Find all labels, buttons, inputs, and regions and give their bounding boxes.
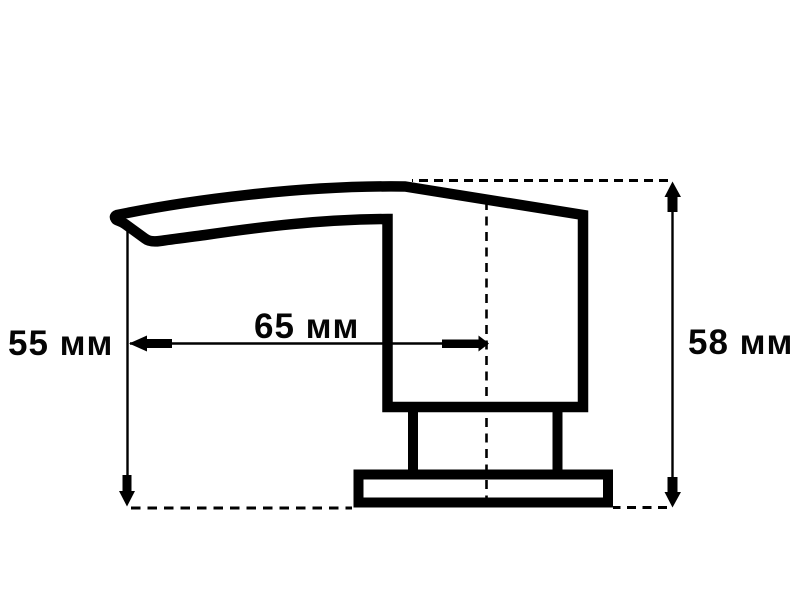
- svg-text:55 мм: 55 мм: [8, 324, 113, 363]
- svg-text:65 мм: 65 мм: [254, 307, 359, 346]
- svg-text:58 мм: 58 мм: [688, 323, 793, 362]
